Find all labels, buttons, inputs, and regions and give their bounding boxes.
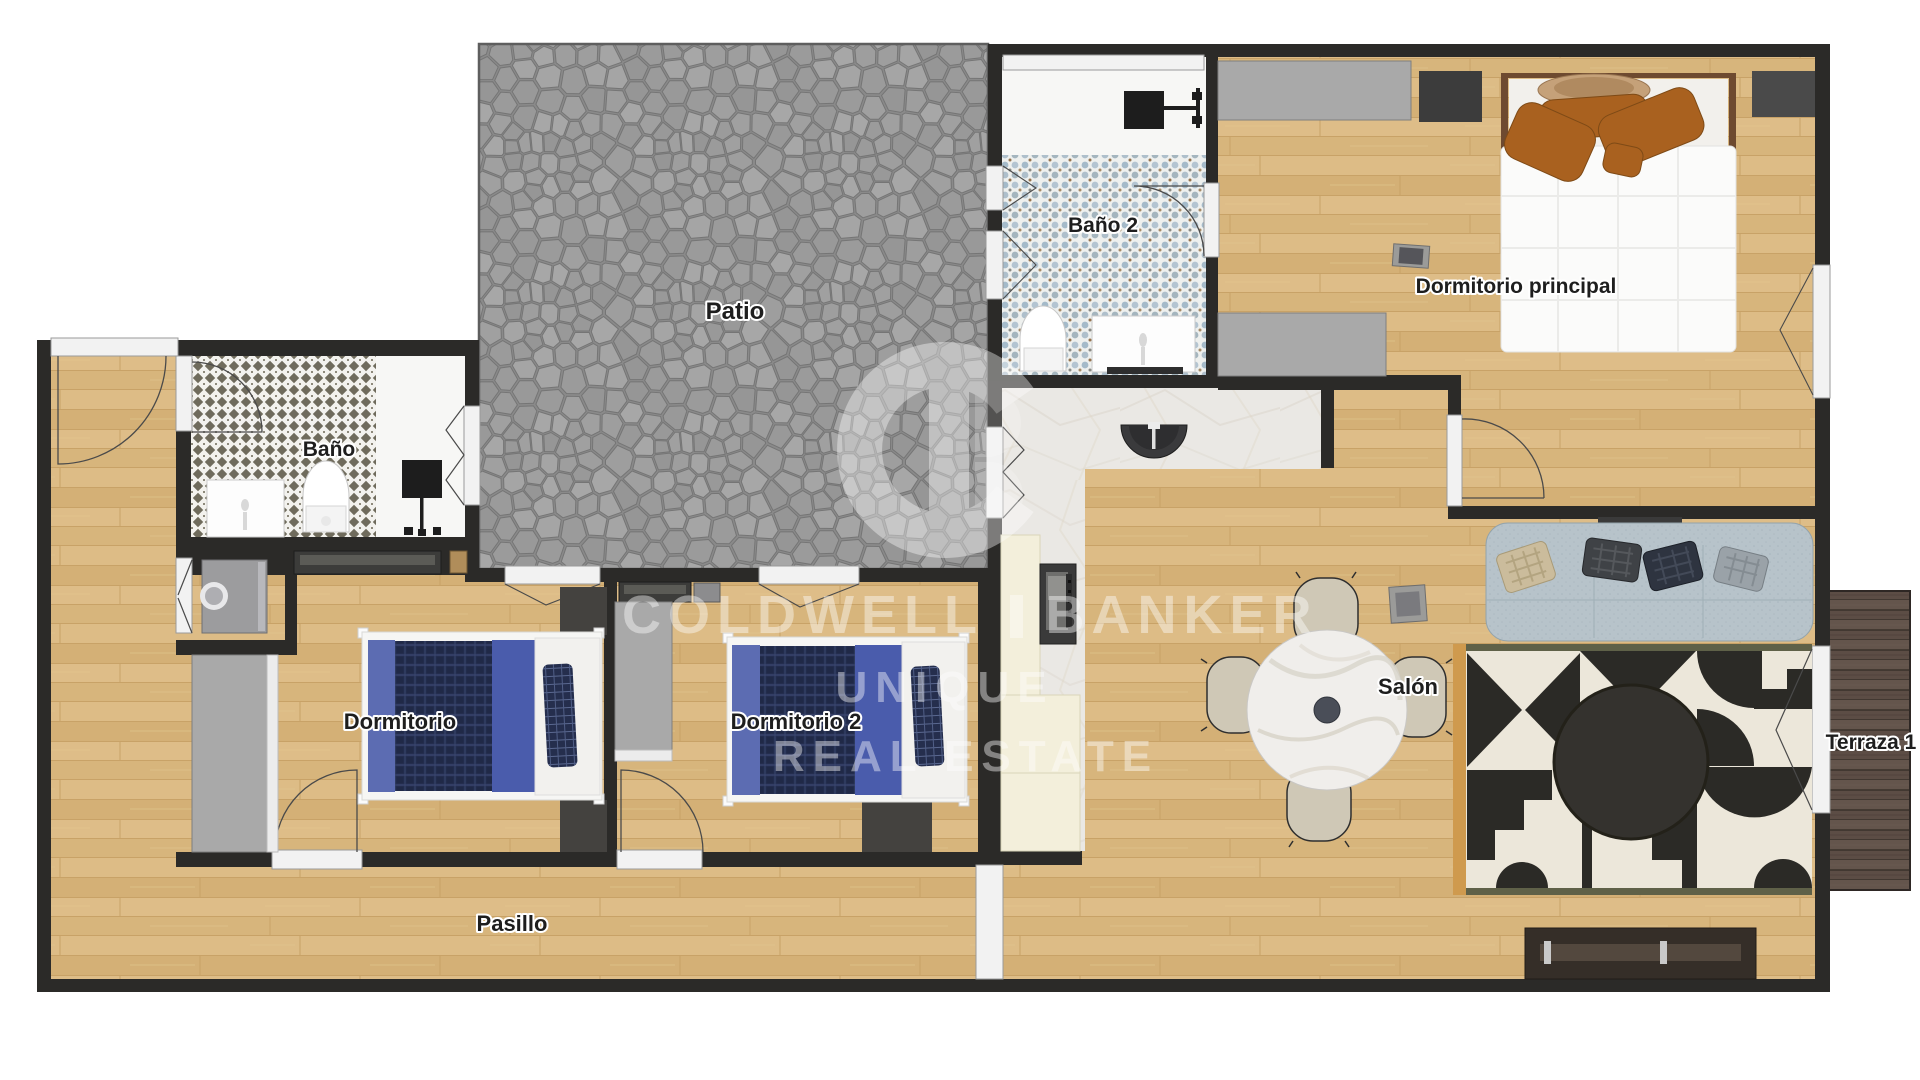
svg-text:Dormitorio: Dormitorio <box>344 709 456 734</box>
svg-text:Baño 2: Baño 2 <box>1068 214 1138 237</box>
svg-text:REAL ESTATE: REAL ESTATE <box>773 732 1159 781</box>
svg-text:COLDWELL: COLDWELL <box>622 585 984 645</box>
svg-text:Baño: Baño <box>303 438 356 461</box>
svg-text:UNIQUE: UNIQUE <box>835 663 1054 712</box>
svg-text:Dormitorio principal: Dormitorio principal <box>1416 275 1617 298</box>
svg-text:Terraza 1: Terraza 1 <box>1826 731 1917 754</box>
svg-text:BANKER: BANKER <box>1045 585 1318 645</box>
svg-text:Patio: Patio <box>706 298 765 325</box>
svg-text:Salón: Salón <box>1378 674 1438 699</box>
svg-text:Dormitorio 2: Dormitorio 2 <box>731 709 862 734</box>
svg-text:Pasillo: Pasillo <box>477 911 548 936</box>
